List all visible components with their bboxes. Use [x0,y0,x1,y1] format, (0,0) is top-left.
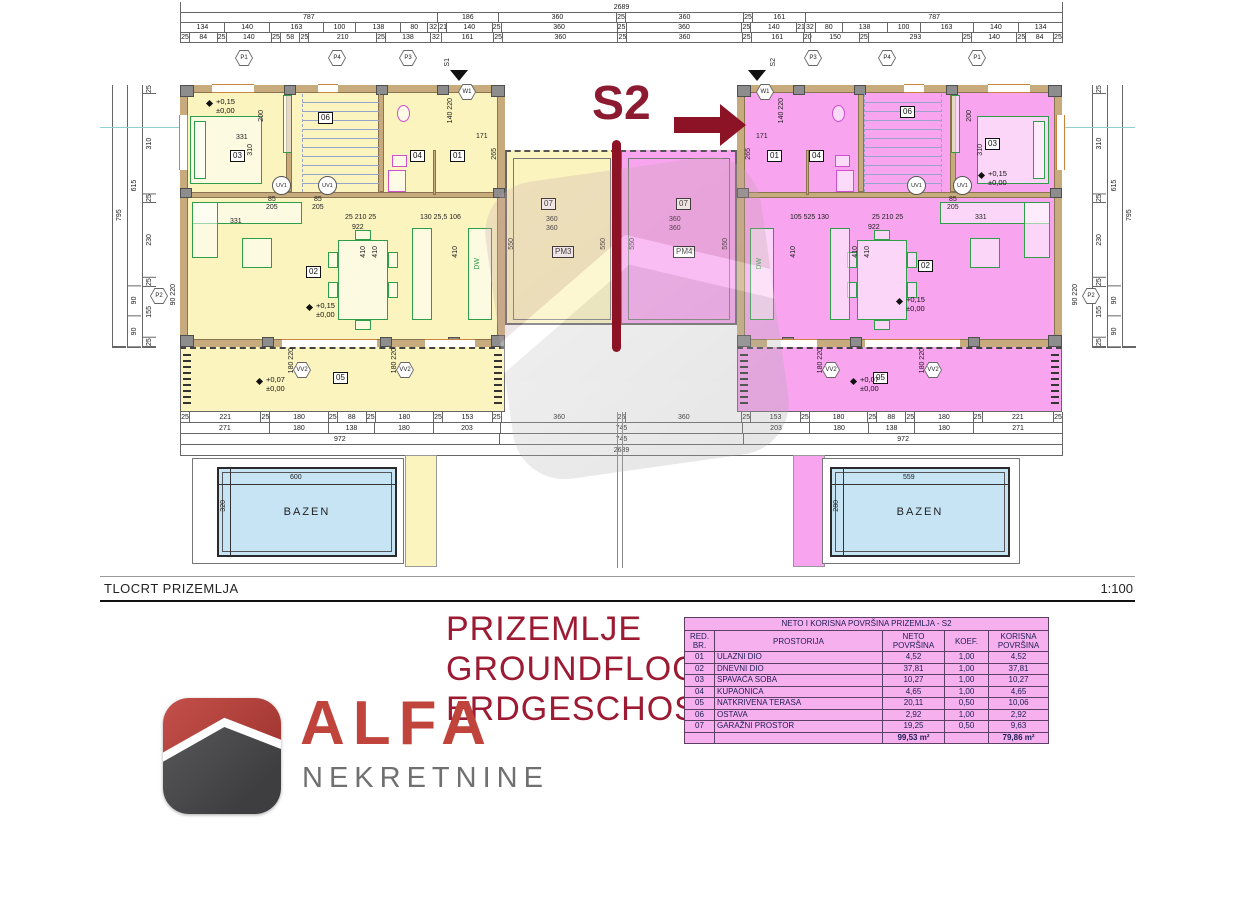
marker-circle: UV1 [907,176,926,195]
dimension-value: 410 [790,246,798,258]
arrow-icon [674,117,720,133]
kitchen-island [412,228,432,320]
entrance-marker-icon [450,70,468,81]
marker-label: P1 [968,50,986,66]
pool-right: BAZEN [830,467,1010,557]
dimension-value: 80 [400,22,427,32]
dimension-value: 795 [113,85,126,347]
dimension-value: 90 [1108,317,1121,347]
dimension-value: 550 [722,238,730,250]
dimension-value: 180 [914,423,973,433]
dimension-value: 200 [966,110,974,122]
chair [388,252,398,268]
area-table-cell: DNEVNI DIO [715,663,883,675]
shower [388,170,406,192]
dimension-value: 25 [743,12,752,22]
dimension-value: 25 [180,32,189,42]
marker-label: P1 [235,50,253,66]
dimension-value: 140 [446,22,492,32]
dimension-value: 105 525 130 [790,214,829,222]
dimension-value: 25 [742,32,751,42]
dimension-value: 25 [859,32,868,42]
dimension-value: 25 [905,412,914,422]
total-korisna: 79,86 m² [989,732,1049,744]
dimension-value: 85 [268,196,276,204]
marker-circle: UV1 [272,176,291,195]
window [179,115,188,170]
dimension-value: 550 [629,238,637,250]
area-table-row: 07GARAŽNI PROSTOR19,250,509,63 [685,721,1049,733]
dimension-value: 787 [180,12,437,22]
room-number: 03 [985,138,1000,150]
plan-scale: 1:100 [1073,581,1133,596]
dimension-value: 161 [752,12,805,22]
dimension-value: 100 [323,22,356,32]
dimension-value: 25 [493,32,502,42]
dimension-value: 25 [867,412,876,422]
dimension-value: 25 [492,412,501,422]
area-table-cell: 0,50 [945,698,989,710]
dimension-value: 25 [741,22,750,32]
dimension-value: 180 [374,423,433,433]
column-header: NETO POVRŠINA [883,631,945,652]
chair [874,320,890,330]
area-table-cell: SPAVAĆA SOBA [715,675,883,687]
area-table-cell: 1,00 [945,686,989,698]
area-table-row: 04KUPAONICA4,651,004,65 [685,686,1049,698]
dishwasher-label: DW [756,258,764,270]
kitchen-counter [468,228,492,320]
dimension-value: 360 [546,225,558,233]
area-table-cell: 20,11 [883,698,945,710]
area-table-row: 02DNEVNI DIO37,811,0037,81 [685,663,1049,675]
marker-label: P4 [878,50,896,66]
room-number: 05 [333,372,348,384]
area-table-cell: 4,65 [989,686,1049,698]
level-value: ±0,00 [216,107,235,116]
level-value: ±0,00 [988,179,1007,188]
chair [907,252,917,268]
pillar [180,85,194,97]
parking-outline [513,158,611,320]
area-table-cell [685,732,715,744]
area-table-cell: 2,92 [883,709,945,721]
dimension-value: 410 [360,246,368,258]
dimension-value: 265 [491,148,499,160]
dimension-value: 360 [501,412,617,422]
area-table-cell [715,732,883,744]
dimension-line [230,467,231,557]
dimension-value: 922 [868,224,880,232]
level-value: ±0,00 [316,311,335,320]
dimension-value: 360 [625,12,743,22]
area-table-cell: 10,06 [989,698,1049,710]
dimension-value: 150 [810,32,859,42]
room-number: 01 [767,150,782,162]
area-table-cell: 04 [685,686,715,698]
area-table-cell: 07 [685,721,715,733]
area-table-cell: 06 [685,709,715,721]
area-table-row: 06OSTAVA2,921,002,92 [685,709,1049,721]
level-value: ±0,00 [860,385,879,394]
dimension-value: 230 [1093,203,1106,278]
level-mark: +0,07±0,00 [860,376,879,393]
marker-hexagon: P3 [399,50,417,66]
dimension-value: 230 [143,203,156,278]
column-header: KORISNA POVRŠINA [989,631,1049,652]
dimension-value: 180 [914,412,972,422]
dimension-value: 787 [805,12,1062,22]
dimension-value: 161 [441,32,493,42]
room-number: 02 [918,260,933,272]
area-table-cell: 05 [685,698,715,710]
window [988,84,1030,93]
sofa [192,202,218,258]
dimension-value: 360 [501,22,617,32]
pillar [491,85,505,97]
dimension-value: 25 210 25 [872,214,903,222]
dimension-value: 25 [143,85,156,94]
plan-title: TLOCRT PRIZEMLJA [104,581,239,596]
dimension-value: 90 220 [170,284,178,305]
marker-label: P3 [804,50,822,66]
dimension-value: 153 [442,412,492,422]
dimension-value: 100 [887,22,920,32]
company-logo-icon [163,698,281,814]
pillar [968,337,980,347]
dimension-value: 2689 [180,445,1062,455]
dimension-value: 559 [903,474,915,482]
marker-hexagon: P4 [328,50,346,66]
dimension-value: 25 [366,412,375,422]
dimension-value: 134 [180,22,224,32]
level-value: ±0,00 [266,385,285,394]
area-table-cell: KUPAONICA [715,686,883,698]
dimension-value: 32 [427,22,438,32]
pillar [491,335,505,347]
dimension-value: 360 [669,225,681,233]
dimension-value: 795 [1123,85,1136,347]
dimension-value: 171 [476,133,488,141]
entrance-label: S2 [770,58,778,67]
column-hatch [183,350,191,404]
dimension-value: 360 [498,12,616,22]
dimension-value: 163 [269,22,322,32]
pillar [437,85,449,95]
dimension-value: 180 [809,412,867,422]
area-table-title: NETO I KORISNA POVRŠINA PRIZEMLJA - S2 [685,618,1049,631]
area-table-cell: 19,25 [883,721,945,733]
dimension-value: 140 220 [778,98,786,123]
chair [355,320,371,330]
area-table-cell: 37,81 [883,663,945,675]
marker-circle: UV1 [318,176,337,195]
dimension-value: 25 [217,32,226,42]
dimension-value: 32 [430,32,441,42]
room-number: 04 [809,150,824,162]
shower [836,170,854,192]
dimension-value: 25 [271,32,280,42]
area-table-cell: 9,63 [989,721,1049,733]
area-table-cell: 1,00 [945,709,989,721]
pillar [262,337,274,347]
sink [835,155,850,167]
dimension-value: 25 [800,412,809,422]
dimension-value: 25 [376,32,385,42]
logo-brand-text: ALFA [300,688,494,759]
sofa [1024,202,1050,258]
section-line [612,140,621,352]
dimension-value: 171 [756,133,768,141]
entrance-marker-icon [748,70,766,81]
marker-hexagon: P1 [968,50,986,66]
center-guide-line [617,412,618,568]
dimension-value: 140 [226,32,271,42]
pillar [284,85,296,95]
dimension-value: 138 [842,22,887,32]
dimension-value: 25 [492,22,501,32]
dimension-value: 410 [452,246,460,258]
pillar [1050,188,1062,198]
area-table-cell: ULAZNI DIO [715,652,883,664]
dimension-value: 360 [625,412,741,422]
dimension-value: 180 220 [919,348,927,373]
dimension-value: 410 [372,246,380,258]
dimension-value: 203 [433,423,500,433]
parking-label: PM4 [673,246,695,258]
dimension-value: 310 [977,144,985,156]
divider [100,576,1135,577]
dimension-value: 615 [128,85,141,286]
pillar [850,337,862,347]
dimension-value: 410 [852,246,860,258]
kitchen-island [830,228,850,320]
dimension-value: 331 [236,134,248,142]
dimension-value: 138 [385,32,430,42]
dimension-value: 180 [809,423,868,433]
window [904,84,924,93]
dimension-line [843,467,844,557]
dimension-value: 25 [1093,338,1106,347]
area-table-cell: 4,52 [883,652,945,664]
wall [433,150,436,195]
dimension-value: 25 [180,412,189,422]
level-value: ±0,00 [906,305,925,314]
room-number: 04 [410,150,425,162]
wall [187,192,498,198]
dimension-value: 550 [600,238,608,250]
dimension-value: 615 [1108,85,1121,286]
pool-label: BAZEN [832,469,1008,555]
dimension-value: 205 [947,204,959,212]
total-neto: 99,53 m² [883,732,945,744]
dimension-value: 90 [128,317,141,347]
coffee-table [970,238,1000,268]
dimension-value: 21 [438,22,446,32]
pool-label: BAZEN [219,469,395,555]
path-strip [793,455,825,567]
dimension-value: 80 [815,22,842,32]
wardrobe [951,95,960,153]
toilet [832,105,845,122]
parking-label: PM3 [552,246,574,258]
dimension-value: 410 [864,246,872,258]
window [318,84,338,93]
staircase [302,94,380,192]
pillar [737,335,751,347]
column-hatch [494,350,502,404]
dimension-value: 360 [626,22,742,32]
dimension-value: 20 [803,32,810,42]
area-table-total-row: 99,53 m² 79,86 m² [685,732,1049,744]
dimension-value: 88 [876,412,905,422]
area-table-cell: 02 [685,663,715,675]
dimension-value: 25 [1093,278,1106,287]
dimension-row: 2584251402558252102513832161253602536025… [180,32,1063,43]
level-mark: +0,15±0,00 [216,98,235,115]
dimension-value: 2689 [180,2,1062,12]
path-strip [405,455,437,567]
dimension-value: 58 [280,32,299,42]
marker-label: P3 [399,50,417,66]
dimension-line [217,484,397,485]
area-table-body: 01ULAZNI DIO4,521,004,5202DNEVNI DIO37,8… [685,652,1049,733]
area-table-cell: 1,00 [945,652,989,664]
dimension-value: 210 [308,32,376,42]
arrow-icon [720,104,746,146]
logo-tagline-text: NEKRETNINE [302,762,549,795]
chair [328,252,338,268]
dimension-value: 140 220 [447,98,455,123]
level-mark: +0,15±0,00 [316,302,335,319]
dimension-value: 180 [269,412,327,422]
area-table-cell: 4,65 [883,686,945,698]
dimension-value: 186 [437,12,498,22]
dimension-value: 745 [500,423,742,433]
dimension-value: 205 [266,204,278,212]
pillar [180,335,194,347]
dimension-value: 180 220 [817,348,825,373]
bed-pillow [194,121,206,179]
sink [392,155,407,167]
dimension-value: 180 220 [288,348,296,373]
area-table: NETO I KORISNA POVRŠINA PRIZEMLJA - S2 R… [684,617,1049,744]
dimension-value: 25 210 25 [345,214,376,222]
subtitle-croatian: PRIZEMLJE [446,610,642,649]
pool-left: BAZEN [217,467,397,557]
center-guide-line [622,412,623,568]
area-table-title-row: NETO I KORISNA POVRŠINA PRIZEMLJA - S2 [685,618,1049,631]
dimension-value: 140 [224,22,270,32]
area-table-cell: 2,92 [989,709,1049,721]
dimension-value: 161 [751,32,803,42]
pillar [493,188,505,198]
dimension-value: 25 [260,412,269,422]
kitchen-counter [750,228,774,320]
dimension-value: 280 [833,500,841,512]
area-table-cell: 4,52 [989,652,1049,664]
dimension-value: 310 [1093,94,1106,194]
dimension-value: 331 [975,214,987,222]
chair [388,282,398,298]
dimension-value: 205 [312,204,324,212]
area-table-header-row: RED. BR. PROSTORIJA NETO POVRŠINA KOEF. … [685,631,1049,652]
dimension-value: 271 [973,423,1062,433]
marker-hexagon: P4 [878,50,896,66]
dimension-value: 140 [971,32,1016,42]
guide-line [100,127,188,128]
dimension-column: 25310252302515525 [1092,85,1106,348]
level-mark: +0,15±0,00 [988,170,1007,187]
dimension-value: 32 [804,22,815,32]
dimension-column: 25310252302515525 [142,85,156,348]
dimension-value: 25 [143,278,156,287]
area-table-cell [945,732,989,744]
wall [744,192,1055,198]
marker-label: P4 [328,50,346,66]
dimension-value: 360 [626,32,741,42]
area-table-cell: OSTAVA [715,709,883,721]
area-table-cell: 1,00 [945,663,989,675]
room-number: 06 [318,112,333,124]
dimension-value: 25 [1016,32,1025,42]
room-number: 07 [541,198,556,210]
dimension-value: 203 [742,423,809,433]
dimension-value: 25 [962,32,971,42]
dimension-value: 90 [1108,286,1121,316]
room-number: 07 [676,198,691,210]
dimension-value: 25 [617,32,626,42]
room-number: 03 [230,150,245,162]
area-table-cell: 10,27 [883,675,945,687]
guide-line [1062,127,1135,128]
column-header: PROSTORIJA [715,631,883,652]
dimension-value: 922 [352,224,364,232]
dimension-value: 21 [796,22,804,32]
dimension-value: 25 [433,412,442,422]
dimension-value: 180 [375,412,433,422]
dimension-column: 795 [1122,85,1136,348]
pillar [946,85,958,95]
marker-circle: UV1 [953,176,972,195]
dimension-value: 180 [269,423,328,433]
bed-pillow [1033,121,1045,179]
wardrobe [283,95,292,153]
dimension-value: 25 [1093,85,1106,94]
room-number: 06 [900,106,915,118]
dimension-line [830,484,1010,485]
dimension-value: 84 [1025,32,1053,42]
marker-hexagon: P1 [235,50,253,66]
dimension-value: 320 [220,500,228,512]
divider [100,600,1135,602]
dimension-value: 360 [502,32,617,42]
pillar [737,188,749,198]
area-table-cell: GARAŽNI PROSTOR [715,721,883,733]
toilet [397,105,410,122]
dimension-value: 180 220 [391,348,399,373]
dimension-value: 221 [189,412,260,422]
dimension-value: 745 [499,434,744,444]
dimension-value: 310 [247,144,255,156]
unit-callout-label: S2 [592,76,651,131]
area-table-row: 01ULAZNI DIO4,521,004,52 [685,652,1049,664]
dimension-value: 134 [1018,22,1062,32]
entrance-label: S1 [444,58,452,67]
dimension-value: 140 [750,22,796,32]
pillar [1048,85,1062,97]
pillar [180,188,192,198]
